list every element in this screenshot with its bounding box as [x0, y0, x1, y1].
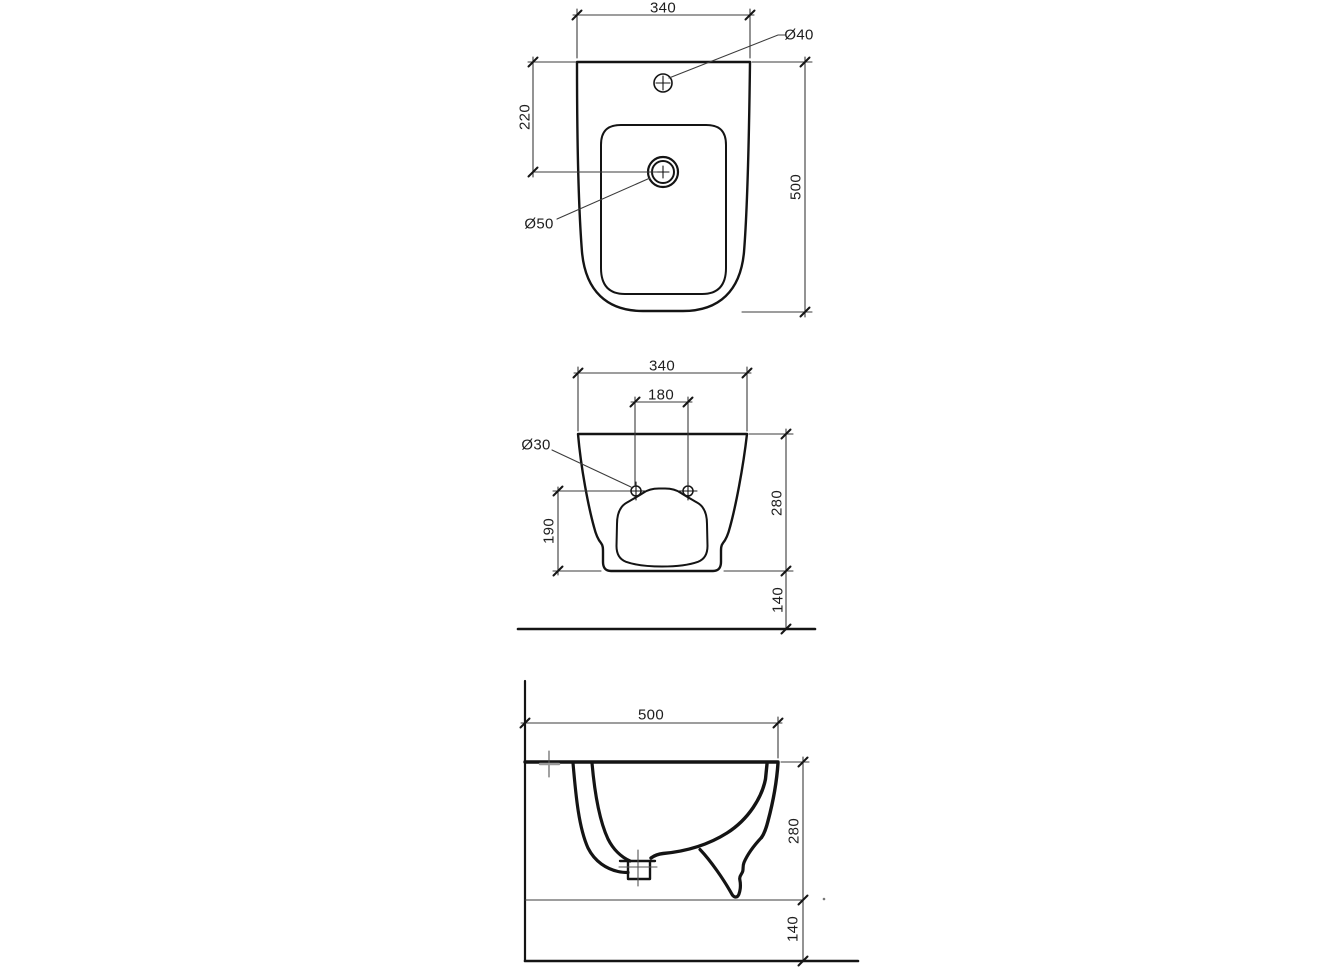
dim-label-side-height: 280 [787, 818, 802, 844]
dim-label-top-depth: 500 [789, 174, 804, 200]
dim-label-front-clearance: 140 [771, 587, 786, 613]
leader-fixing-hole [552, 450, 631, 487]
dim-label-top-width: 340 [650, 1, 676, 16]
stray-dot [823, 898, 826, 901]
dim-label-fixing-hole-diameter: Ø30 [521, 438, 550, 453]
leader-tap-hole [669, 35, 786, 78]
top-view-basin-outline [601, 125, 726, 294]
technical-drawing-canvas: 340 Ø40 220 Ø50 500 340 180 Ø30 190 280 … [0, 0, 1338, 978]
dim-label-tap-hole-diameter: Ø40 [784, 28, 813, 43]
dim-label-hole-spacing: 180 [648, 388, 674, 403]
dim-label-drain-diameter: Ø50 [524, 217, 553, 232]
dim-label-side-clearance: 140 [786, 916, 801, 942]
dim-label-side-depth: 500 [638, 708, 664, 723]
drawing-linework [0, 0, 1338, 978]
back-rim-inner-profile [592, 763, 630, 861]
basin-interior-profile [651, 764, 767, 858]
dim-label-front-width: 340 [649, 359, 675, 374]
tap-hole-center-mark [656, 76, 670, 90]
front-view-back-contour [617, 489, 708, 567]
dim-label-drain-offset: 220 [518, 104, 533, 130]
leader-drain [557, 178, 650, 219]
drain-center-mark [657, 166, 669, 178]
extension-lines-190 [553, 491, 630, 571]
side-view-dimension-lines [521, 717, 810, 966]
drain-fitting-axis [619, 850, 657, 886]
front-view-body-outline [578, 434, 747, 571]
dim-label-lower-edge-height: 190 [542, 518, 557, 544]
extension-lines-180 [635, 397, 688, 486]
front-outer-profile [762, 763, 779, 838]
outlet-spout-profile [700, 838, 762, 898]
dim-label-front-height: 280 [770, 490, 785, 516]
drain-fitting-box [628, 861, 650, 879]
top-view [577, 62, 750, 311]
dimension-ticks-side-view [521, 719, 808, 966]
